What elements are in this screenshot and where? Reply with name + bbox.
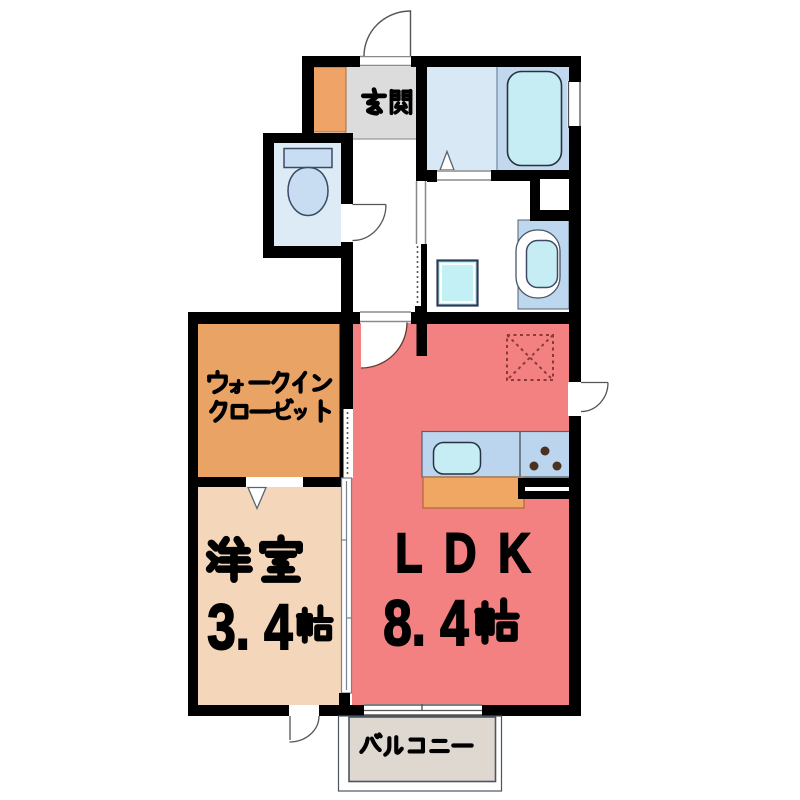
- svg-text:3. 4: 3. 4: [207, 593, 292, 664]
- svg-text:LDK: LDK: [395, 521, 552, 584]
- svg-text:8. 4: 8. 4: [383, 589, 468, 660]
